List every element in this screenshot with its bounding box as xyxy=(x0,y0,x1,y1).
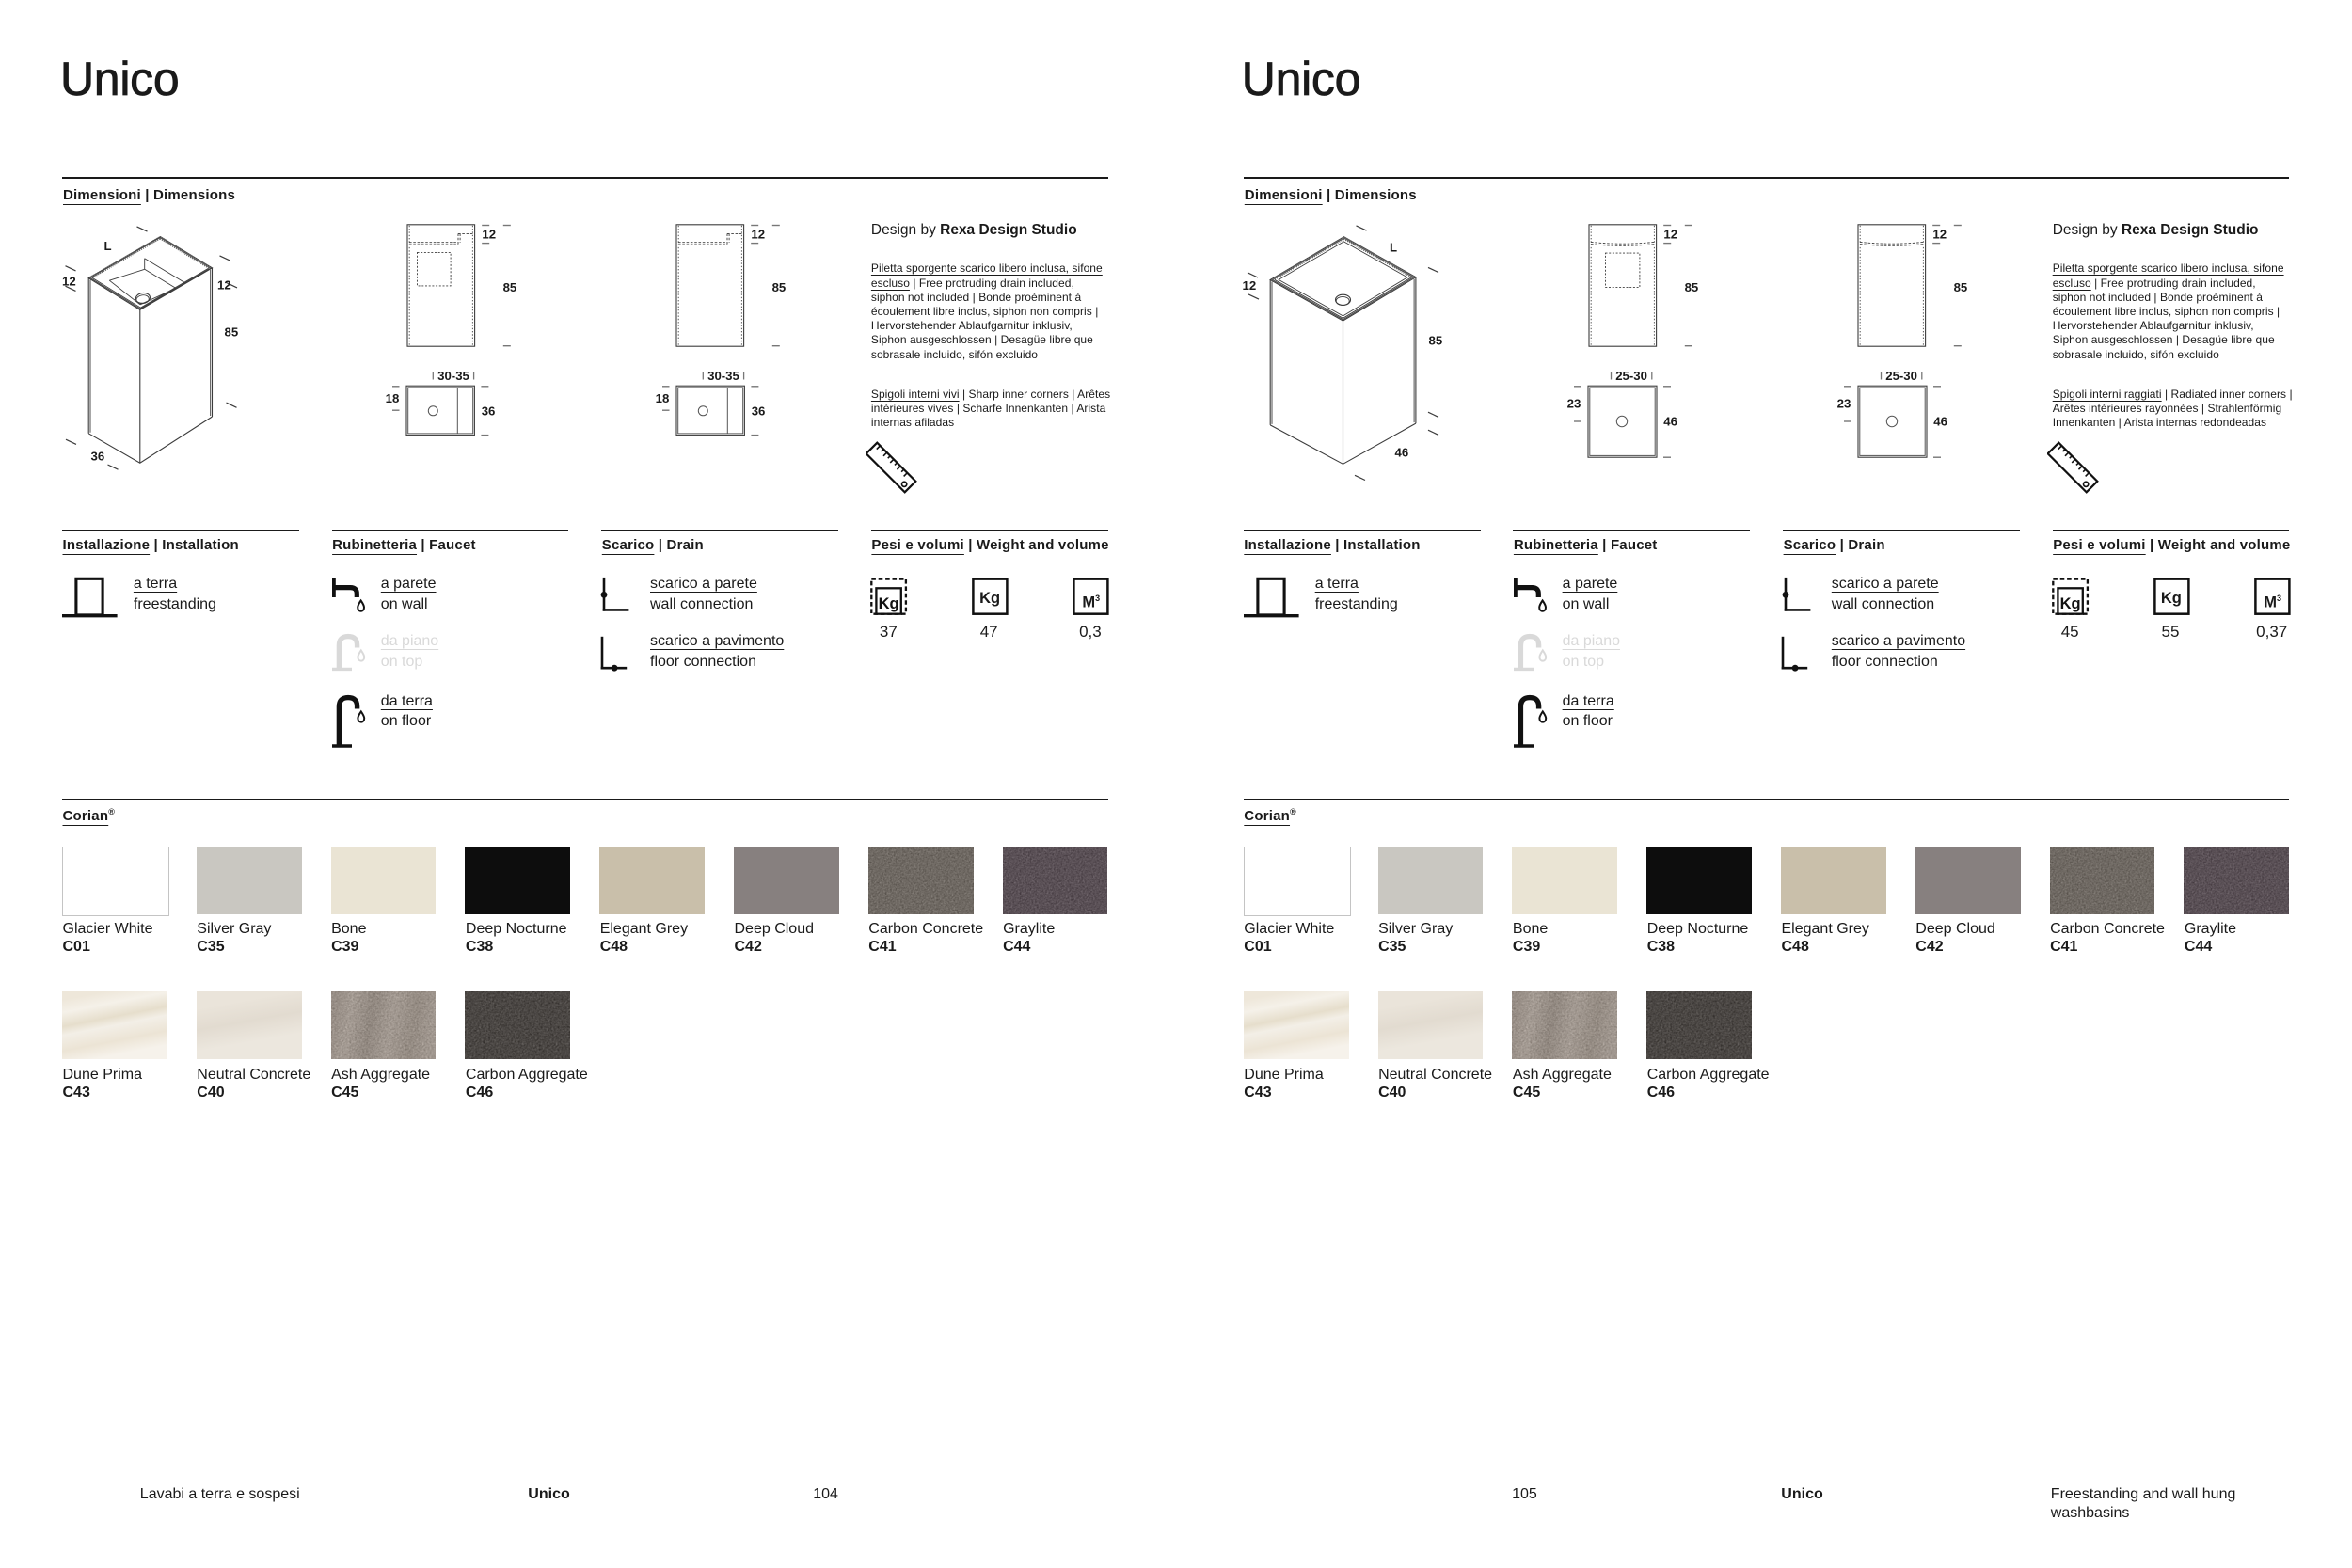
svg-text:L: L xyxy=(1390,240,1397,254)
svg-text:12: 12 xyxy=(1663,228,1677,242)
svg-text:85: 85 xyxy=(502,280,516,294)
svg-text:25-30: 25-30 xyxy=(1885,369,1917,383)
svg-text:12: 12 xyxy=(62,274,76,288)
svg-text:30-35: 30-35 xyxy=(438,369,470,383)
svg-text:12: 12 xyxy=(1243,278,1257,293)
svg-text:12: 12 xyxy=(752,228,766,242)
svg-text:46: 46 xyxy=(1395,446,1409,460)
svg-text:36: 36 xyxy=(752,404,766,418)
svg-text:23: 23 xyxy=(1567,397,1581,411)
svg-text:Kg: Kg xyxy=(878,595,898,612)
svg-text:Kg: Kg xyxy=(2059,595,2080,612)
svg-text:85: 85 xyxy=(1429,334,1443,348)
svg-text:36: 36 xyxy=(91,450,105,464)
svg-text:46: 46 xyxy=(1663,415,1677,429)
svg-text:18: 18 xyxy=(386,391,400,405)
svg-text:85: 85 xyxy=(1684,280,1698,294)
svg-text:85: 85 xyxy=(225,325,239,339)
svg-text:30-35: 30-35 xyxy=(707,369,739,383)
svg-text:85: 85 xyxy=(1954,280,1968,294)
svg-text:12: 12 xyxy=(1933,228,1947,242)
svg-text:12: 12 xyxy=(217,278,231,293)
svg-text:85: 85 xyxy=(772,280,787,294)
svg-text:36: 36 xyxy=(482,404,496,418)
svg-text:25-30: 25-30 xyxy=(1615,369,1647,383)
svg-text:23: 23 xyxy=(1836,397,1851,411)
svg-text:46: 46 xyxy=(1933,415,1947,429)
svg-text:12: 12 xyxy=(482,228,496,242)
svg-text:L: L xyxy=(104,239,112,253)
svg-text:18: 18 xyxy=(656,391,670,405)
